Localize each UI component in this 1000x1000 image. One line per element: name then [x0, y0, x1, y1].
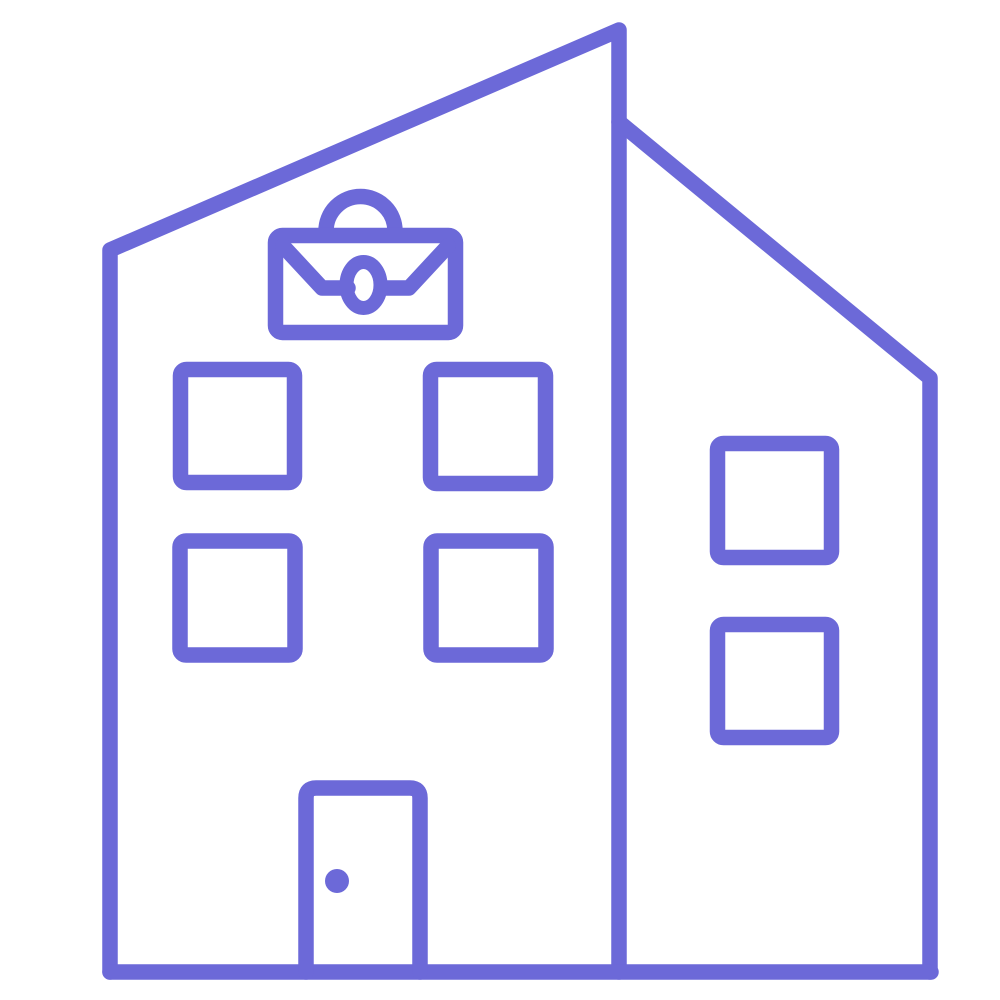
window-annex-upper — [718, 444, 832, 558]
right-annex-outline — [619, 122, 930, 972]
briefcase-handle — [326, 197, 395, 231]
main-building-outline — [110, 30, 619, 972]
door — [306, 788, 420, 972]
icon-stroke-group — [110, 30, 931, 972]
doorknob — [325, 869, 349, 893]
briefcase-body — [276, 236, 456, 333]
window-main-upper-right — [431, 370, 546, 484]
briefcase-clasp — [347, 262, 381, 308]
briefcase-flap-right — [383, 246, 448, 288]
window-annex-lower — [718, 625, 832, 738]
window-main-upper-left — [181, 370, 295, 483]
briefcase-flap-left — [283, 246, 348, 288]
window-main-lower-right — [431, 541, 546, 655]
briefcase-emblem — [276, 197, 456, 333]
icon-canvas — [0, 0, 1000, 1000]
office-building-icon — [0, 0, 1000, 1000]
window-main-lower-left — [180, 541, 295, 655]
